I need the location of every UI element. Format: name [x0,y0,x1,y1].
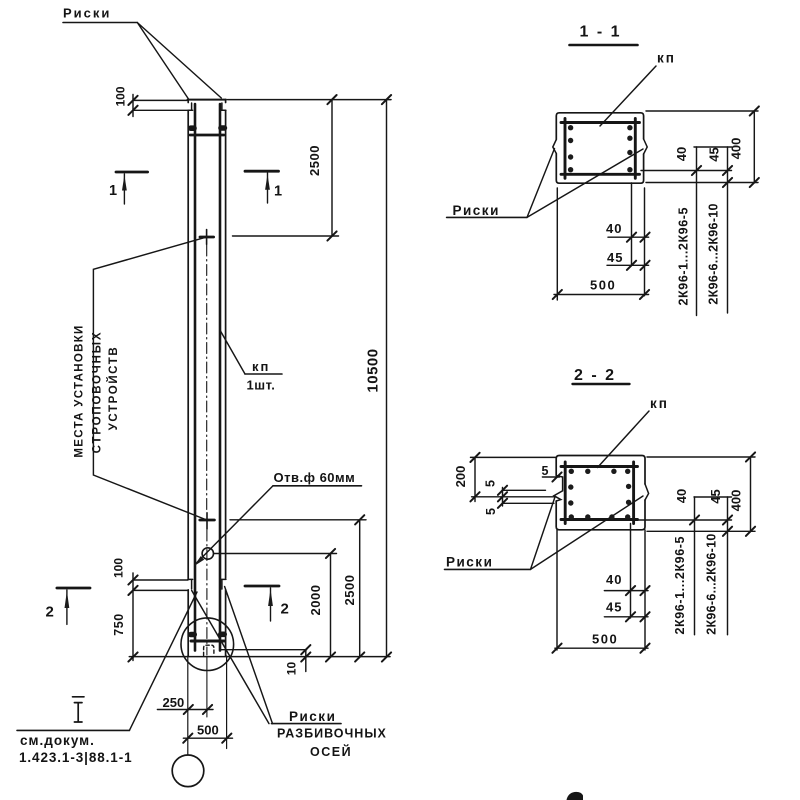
svg-text:400: 400 [729,138,744,160]
svg-text:45: 45 [707,147,722,161]
svg-text:1 - 1: 1 - 1 [580,24,622,41]
svg-text:кп: кп [657,51,676,66]
svg-text:1шт.: 1шт. [247,378,276,393]
svg-text:РАЗБИВОЧНЫХ: РАЗБИВОЧНЫХ [277,727,387,741]
svg-text:Риски: Риски [453,203,500,218]
svg-text:40: 40 [606,221,622,236]
svg-text:45: 45 [606,600,622,615]
svg-text:2К96-6...2К96-10: 2К96-6...2К96-10 [706,203,720,304]
svg-text:СТРОПОВОЧНЫХ: СТРОПОВОЧНЫХ [92,331,104,454]
svg-text:250: 250 [163,695,185,710]
svg-text:2К96-1...2К96-5: 2К96-1...2К96-5 [673,536,687,635]
svg-text:2К96-1...2К96-5: 2К96-1...2К96-5 [677,207,691,306]
svg-text:5: 5 [484,480,498,487]
svg-text:500: 500 [590,278,616,293]
svg-text:2000: 2000 [308,585,323,616]
svg-text:5: 5 [542,464,549,478]
svg-text:500: 500 [592,632,618,647]
svg-text:кп: кп [252,359,270,374]
svg-text:5: 5 [484,508,498,515]
svg-text:1.423.1-3|88.1-1: 1.423.1-3|88.1-1 [19,750,133,765]
svg-text:40: 40 [674,489,689,503]
svg-text:2: 2 [281,601,289,618]
svg-text:2500: 2500 [307,145,322,176]
svg-text:УСТРОЙСТВ: УСТРОЙСТВ [107,346,120,431]
svg-text:Риски: Риски [63,6,111,21]
svg-text:Риски: Риски [289,709,336,724]
svg-text:200: 200 [453,466,468,488]
svg-text:40: 40 [606,572,622,587]
svg-text:40: 40 [674,147,689,161]
svg-text:10: 10 [285,662,299,676]
svg-text:1: 1 [274,184,282,200]
svg-text:500: 500 [197,723,219,738]
svg-text:Отв.ф 60мм: Отв.ф 60мм [274,470,356,485]
svg-text:2: 2 [46,604,54,621]
svg-text:2 - 2: 2 - 2 [574,367,616,384]
svg-text:1: 1 [109,183,117,199]
svg-text:750: 750 [112,613,126,635]
svg-text:Риски: Риски [446,555,493,570]
svg-text:2500: 2500 [342,575,357,606]
svg-text:100: 100 [112,558,126,578]
svg-text:2К96-6...2К96-10: 2К96-6...2К96-10 [705,533,719,634]
svg-text:кп: кп [650,396,669,411]
svg-text:100: 100 [114,86,128,106]
svg-text:45: 45 [708,489,723,503]
svg-text:45: 45 [607,250,623,265]
svg-text:МЕСТА УСТАНОВКИ: МЕСТА УСТАНОВКИ [74,324,86,457]
svg-text:ОСЕЙ: ОСЕЙ [310,744,352,759]
svg-text:10500: 10500 [365,348,382,392]
svg-text:400: 400 [728,490,743,512]
svg-text:см.докум.: см.докум. [20,733,95,748]
